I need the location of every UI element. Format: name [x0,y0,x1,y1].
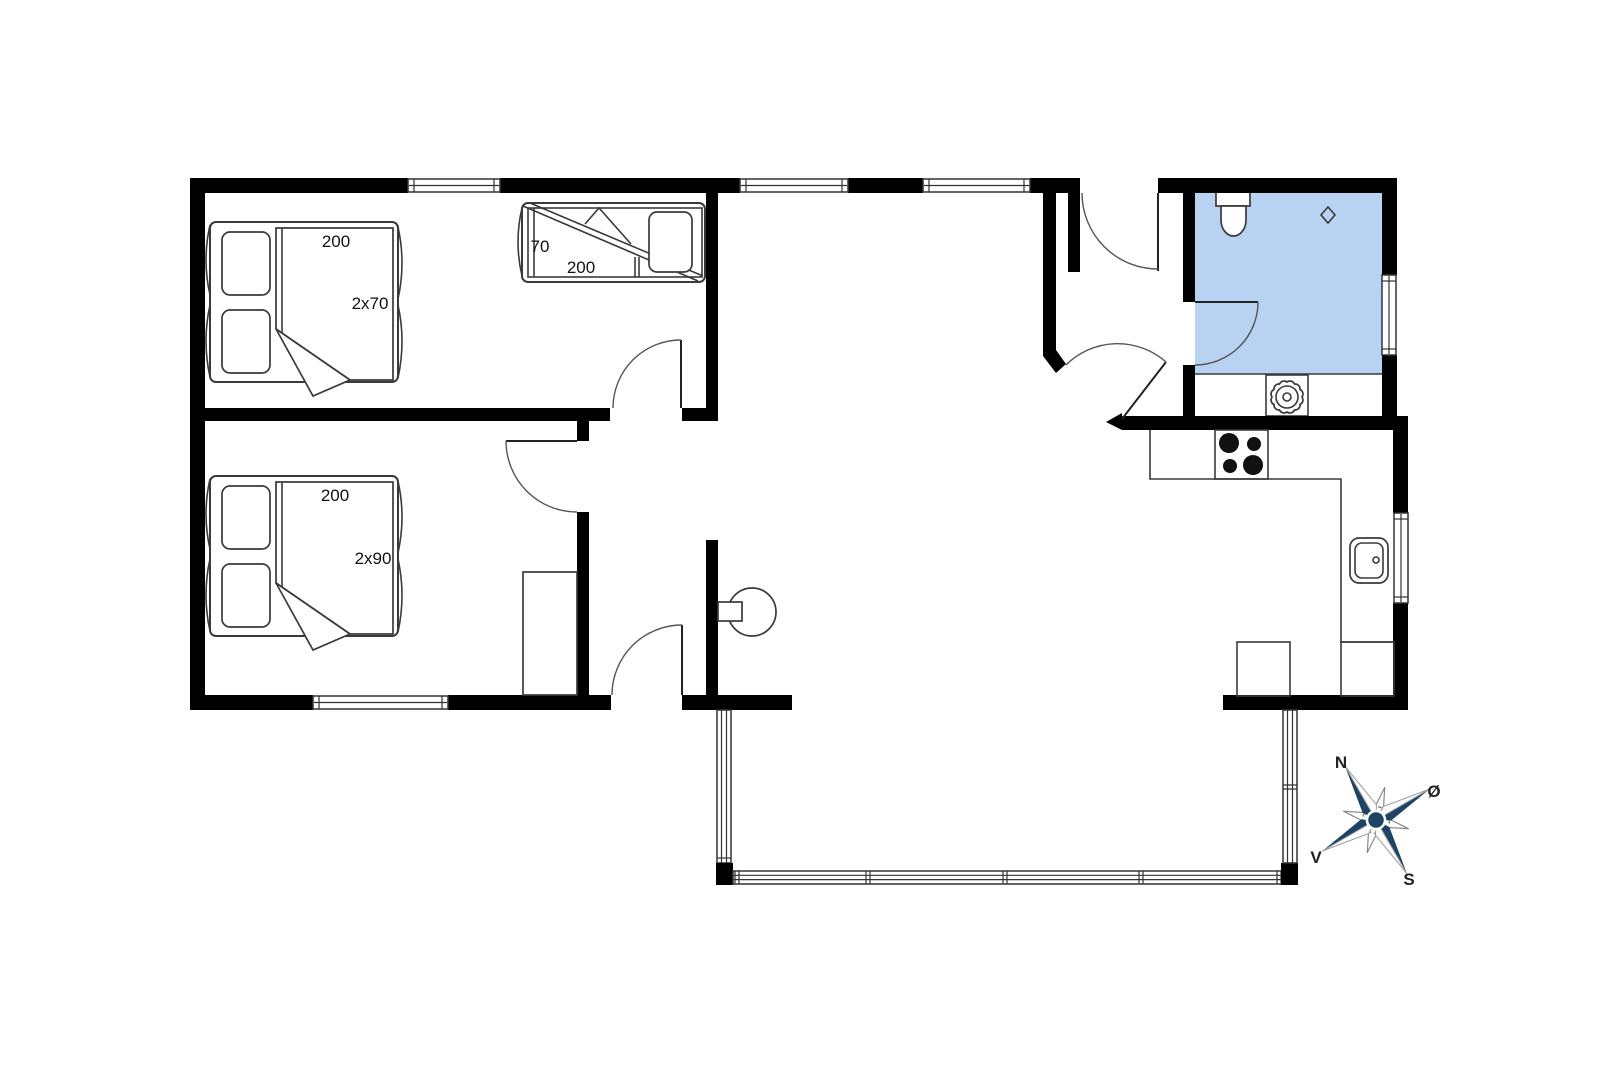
bunk-length-label: 200 [567,258,595,277]
entry-door [1082,193,1158,271]
wall-segment [1183,193,1195,302]
wall-segment [448,695,611,710]
wall-segment [1393,603,1408,710]
wardrobe [523,572,577,695]
floor-plan-page: { "title": "Floor plan", "labels": { "be… [0,0,1600,1066]
stove-icon [1215,430,1268,479]
wall-segment [848,178,923,193]
wall-segment [1068,193,1080,272]
wall-segment [190,178,408,193]
floor-plan-canvas: 200 2x70 70 200 200 2x90 [0,0,1600,1066]
wall-segment [1158,178,1397,193]
wall-segment [1122,416,1397,430]
hall-living-door [1066,344,1166,419]
terrace-post [1281,863,1298,885]
kitchen-cabinet [1341,642,1394,696]
window-living-north-2 [923,179,1030,192]
cabinet [1237,642,1290,696]
bedroom1-furniture: 200 2x70 70 200 [206,203,705,396]
wall-segment [1393,416,1408,513]
compass-label-south: S [1403,870,1414,889]
bedroom2-furniture: 200 2x90 [206,476,577,695]
bed1-width-label: 2x70 [352,294,389,313]
bedroom1-door [613,340,681,408]
terrace-glass-south [733,871,1283,884]
wall-segment [1043,193,1066,373]
terrace-post [716,863,733,885]
window-kitchen-east [1394,513,1408,603]
compass-label-east: Ø [1427,782,1440,801]
wall-segment [682,695,792,710]
kitchen-sink-icon [1350,538,1388,583]
wall-segment [1106,413,1122,430]
terrace-glass-west [717,710,731,863]
compass-label-north: N [1335,753,1347,772]
wall-segment [1223,695,1408,710]
hall-exterior-door [612,625,682,695]
window-bathroom-east [1382,275,1396,355]
compass-rose: N Ø V S [1291,735,1460,904]
wood-stove-icon [718,588,776,636]
wall-segment [190,178,205,710]
living-room [718,588,776,636]
wall-segment [1382,178,1397,275]
window-living-north-1 [740,179,848,192]
wall-segment [577,421,589,441]
wall-segment [706,540,718,695]
kitchen [1150,430,1394,696]
window-bedroom2-south [313,696,448,709]
terrace [716,710,1298,885]
bed2-length-label: 200 [321,486,349,505]
washbasin-icon [1266,375,1308,416]
wall-segment [190,695,313,710]
kitchen-counter [1150,430,1394,642]
bunk-width-label: 70 [531,237,550,256]
wall-segment [190,408,610,421]
bed2-width-label: 2x90 [355,549,392,568]
terrace-glass-east [1283,710,1297,863]
wall-segment [577,512,589,695]
bedroom2-door [506,441,577,512]
wall-segment [1183,365,1195,416]
wall-segment [500,178,740,193]
wall-segment [1030,178,1080,193]
window-bedroom1-north [408,179,500,192]
compass-label-west: V [1310,848,1322,867]
bed1-length-label: 200 [322,232,350,251]
wall-segment [706,193,718,421]
